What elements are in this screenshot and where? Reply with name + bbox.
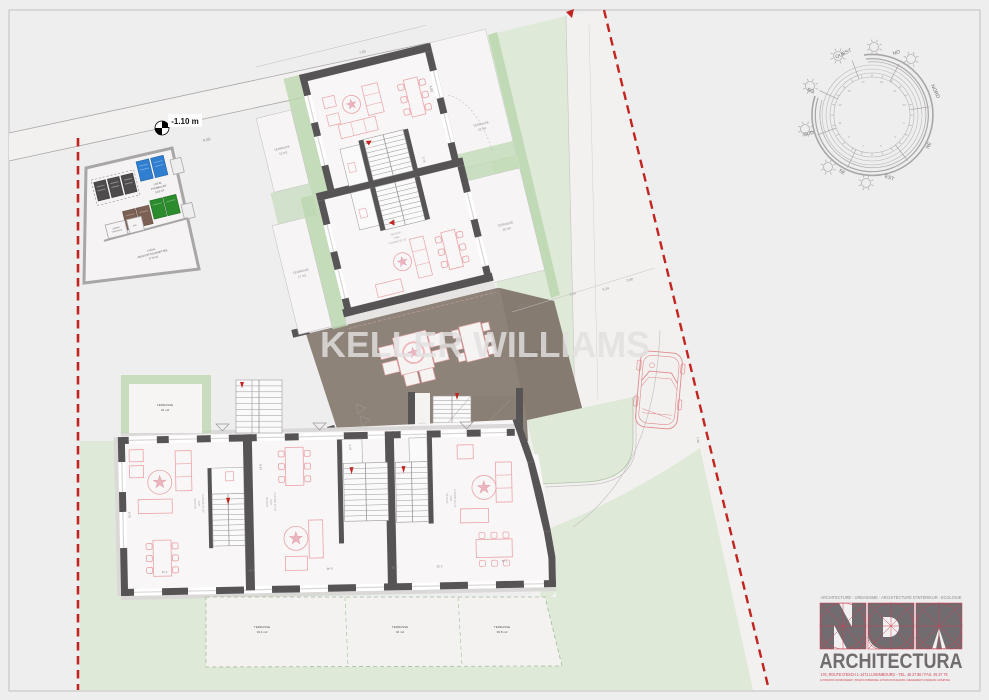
svg-text:17: 17 [861, 80, 865, 84]
svg-text:2.35: 2.35 [391, 565, 397, 569]
svg-text:4.34: 4.34 [161, 570, 167, 574]
svg-text:1.88: 1.88 [696, 437, 700, 443]
svg-text:36,8 m2: 36,8 m2 [497, 630, 508, 634]
svg-text:TERRASSE: TERRASSE [157, 403, 173, 407]
svg-text:-1.10 m: -1.10 m [171, 117, 199, 126]
svg-text:TERRASSE: TERRASSE [254, 625, 270, 629]
svg-text:CUISINE 60 m2: CUISINE 60 m2 [273, 493, 277, 512]
svg-text:11: 11 [838, 121, 841, 125]
svg-text:AUTORISATION D'ETABLISSEMENT /: AUTORISATION D'ETABLISSEMENT / PROJETS D… [820, 678, 950, 682]
svg-text:KELLER WILLIAMS: KELLER WILLIAMS [320, 324, 650, 365]
svg-text:8.79: 8.79 [127, 512, 131, 518]
svg-text:CUISINE 60 m2: CUISINE 60 m2 [453, 489, 457, 508]
svg-text:176, ROUTE D'ESCH L-1471 LUXEM: 176, ROUTE D'ESCH L-1471 LUXEMBOURG - TE… [821, 672, 948, 677]
svg-text:23: 23 [902, 103, 906, 107]
svg-text:SAM: SAM [269, 499, 273, 505]
svg-text:2.35: 2.35 [248, 568, 254, 572]
svg-text:ARCHITECTURE - URBANISME -: ARCHITECTURE - URBANISME - ARCHITECTURE … [821, 594, 962, 601]
svg-text:13: 13 [838, 103, 842, 107]
svg-text:TERRASSE: TERRASSE [494, 625, 510, 629]
svg-text:32 m2: 32 m2 [161, 408, 170, 412]
svg-text:5.46: 5.46 [326, 567, 332, 571]
svg-text:8.87: 8.87 [258, 464, 262, 470]
svg-text:32 m2: 32 m2 [396, 630, 405, 634]
svg-text:CUISINE 60 m2: CUISINE 60 m2 [201, 494, 205, 513]
svg-text:SEJOUR: SEJOUR [193, 498, 197, 509]
svg-text:21: 21 [893, 89, 897, 93]
svg-text:2.76: 2.76 [348, 444, 352, 450]
svg-text:7.44: 7.44 [501, 559, 507, 563]
svg-text:2.35: 2.35 [436, 564, 442, 568]
svg-text:SAM: SAM [449, 495, 453, 501]
svg-text:TERRASSE: TERRASSE [392, 625, 408, 629]
svg-text:15: 15 [847, 89, 851, 93]
svg-text:SEJOUR: SEJOUR [265, 497, 269, 508]
svg-text:SEJOUR: SEJOUR [445, 493, 449, 504]
svg-text:19: 19 [879, 80, 883, 84]
svg-text:SAM: SAM [197, 501, 201, 507]
svg-text:ARCHITECTURA: ARCHITECTURA [820, 650, 963, 673]
svg-text:16,4 m2: 16,4 m2 [257, 630, 268, 634]
